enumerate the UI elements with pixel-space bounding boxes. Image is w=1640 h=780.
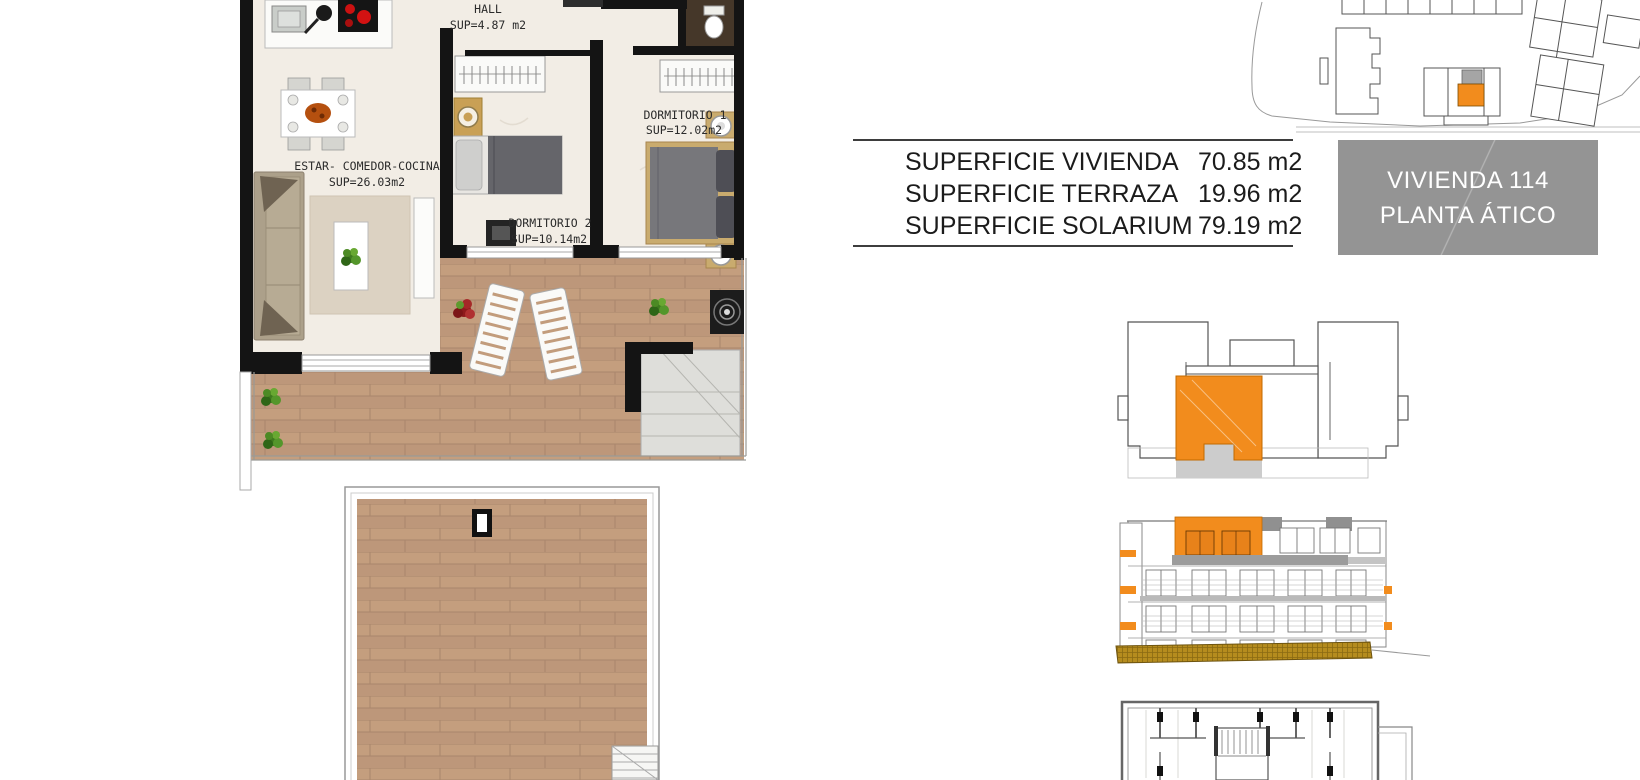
surface-label: SUPERFICIE SOLARIUM <box>905 210 1193 242</box>
surface-label: SUPERFICIE VIVIENDA <box>905 146 1179 178</box>
sofa <box>254 172 304 340</box>
ground-base <box>1116 642 1372 663</box>
pan <box>316 5 332 21</box>
solarium-stairs <box>612 746 658 780</box>
room-area-living: SUP=26.03m2 <box>329 175 405 189</box>
building-elevation <box>1050 480 1440 680</box>
stool-top <box>492 226 510 240</box>
room-label-bedroom1: DORMITORIO 1 <box>643 108 726 122</box>
surface-value: 79.19 m2 <box>1198 210 1302 242</box>
garage-extension <box>1378 727 1412 780</box>
penthouse-highlight <box>1175 517 1262 557</box>
roof-box-gray <box>1262 517 1282 531</box>
wardrobe-bedroom1 <box>660 60 738 92</box>
surface-row: SUPERFICIE VIVIENDA 70.85 m2 <box>853 146 1293 178</box>
room-area-hall: SUP=4.87 m2 <box>450 18 526 32</box>
solarium-plan <box>345 487 659 780</box>
room-label-living: ESTAR- COMEDOR-COCINA <box>294 159 439 173</box>
room-area-bedroom2: SUP=10.14m2 <box>511 232 587 246</box>
site-building-north <box>1342 0 1522 14</box>
bed-bedroom1 <box>646 142 742 244</box>
surface-row: SUPERFICIE TERRAZA 19.96 m2 <box>853 178 1293 210</box>
key-shadow-below <box>1176 460 1262 478</box>
surface-value: 70.85 m2 <box>1198 146 1302 178</box>
surface-table: SUPERFICIE VIVIENDA 70.85 m2 SUPERFICIE … <box>853 139 1293 247</box>
garage-stairs <box>1214 726 1270 780</box>
garage-plan <box>1110 695 1640 780</box>
bed-bedroom2 <box>452 136 562 194</box>
tv-unit <box>414 198 434 298</box>
unit-badge-line1: VIVIENDA 114 <box>1387 163 1549 198</box>
key-plan <box>1075 305 1445 480</box>
toilet <box>704 6 724 15</box>
site-plan <box>1240 0 1640 140</box>
unit-badge: VIVIENDA 114 PLANTA ÁTICO <box>1338 140 1598 255</box>
unit-badge-line2: PLANTA ÁTICO <box>1380 198 1556 233</box>
brochure-page: HALL SUP=4.87 m2 ESTAR- COMEDOR-COCINA S… <box>0 0 1640 780</box>
apartment-floor-plan: HALL SUP=4.87 m2 ESTAR- COMEDOR-COCINA S… <box>228 0 768 780</box>
kitchen-hob <box>338 0 378 32</box>
room-area-bedroom1: SUP=12.02m2 <box>646 123 722 137</box>
coffee-table <box>334 222 368 290</box>
room-label-hall: HALL <box>474 2 502 16</box>
site-building-west <box>1336 28 1380 114</box>
site-buildings-east <box>1519 0 1640 131</box>
key-shadow <box>1204 444 1234 460</box>
outdoor-shower <box>710 290 744 334</box>
site-unit-highlight <box>1458 84 1484 106</box>
windows-f4 <box>1280 528 1380 553</box>
key-roof-box <box>1230 340 1294 366</box>
wardrobe-bedroom2 <box>455 56 545 92</box>
surface-row: SUPERFICIE SOLARIUM 79.19 m2 <box>853 210 1293 242</box>
solarium-deck <box>357 499 647 780</box>
penthouse-balcony-slab <box>1172 555 1348 565</box>
terrace-stairs <box>641 350 740 456</box>
room-label-bedroom2: DORMITORIO 2 <box>508 216 591 230</box>
surface-label: SUPERFICIE TERRAZA <box>905 178 1178 210</box>
kitchen-counter <box>265 0 392 48</box>
site-unit-gray <box>1462 70 1482 84</box>
entry-door <box>563 0 603 7</box>
surface-value: 19.96 m2 <box>1198 178 1302 210</box>
bathroom <box>686 0 740 50</box>
nightstand-bedroom2 <box>454 98 482 136</box>
dish <box>305 103 331 123</box>
planter <box>240 372 251 490</box>
